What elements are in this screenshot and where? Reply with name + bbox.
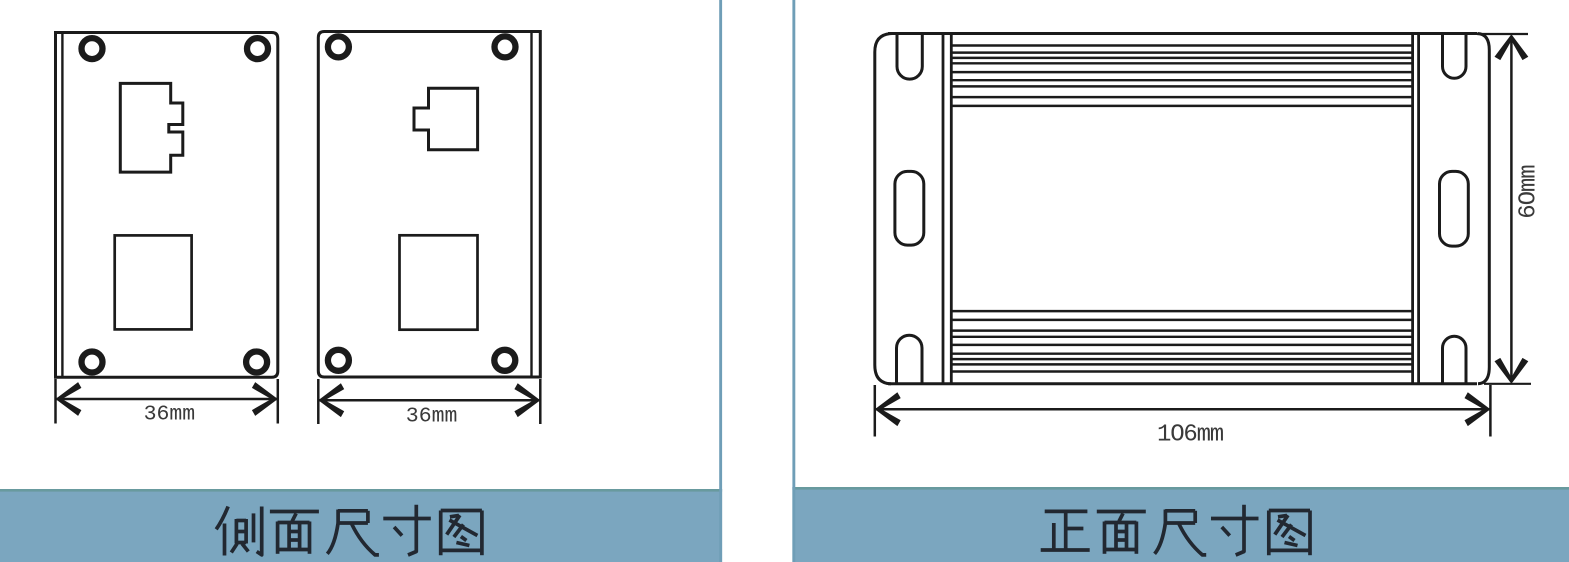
svg-text:36mm: 36mm — [406, 404, 458, 428]
svg-text:6Omm: 6Omm — [1515, 165, 1542, 219]
svg-text:1O6mm: 1O6mm — [1157, 422, 1224, 449]
svg-text:36mm: 36mm — [144, 403, 196, 427]
